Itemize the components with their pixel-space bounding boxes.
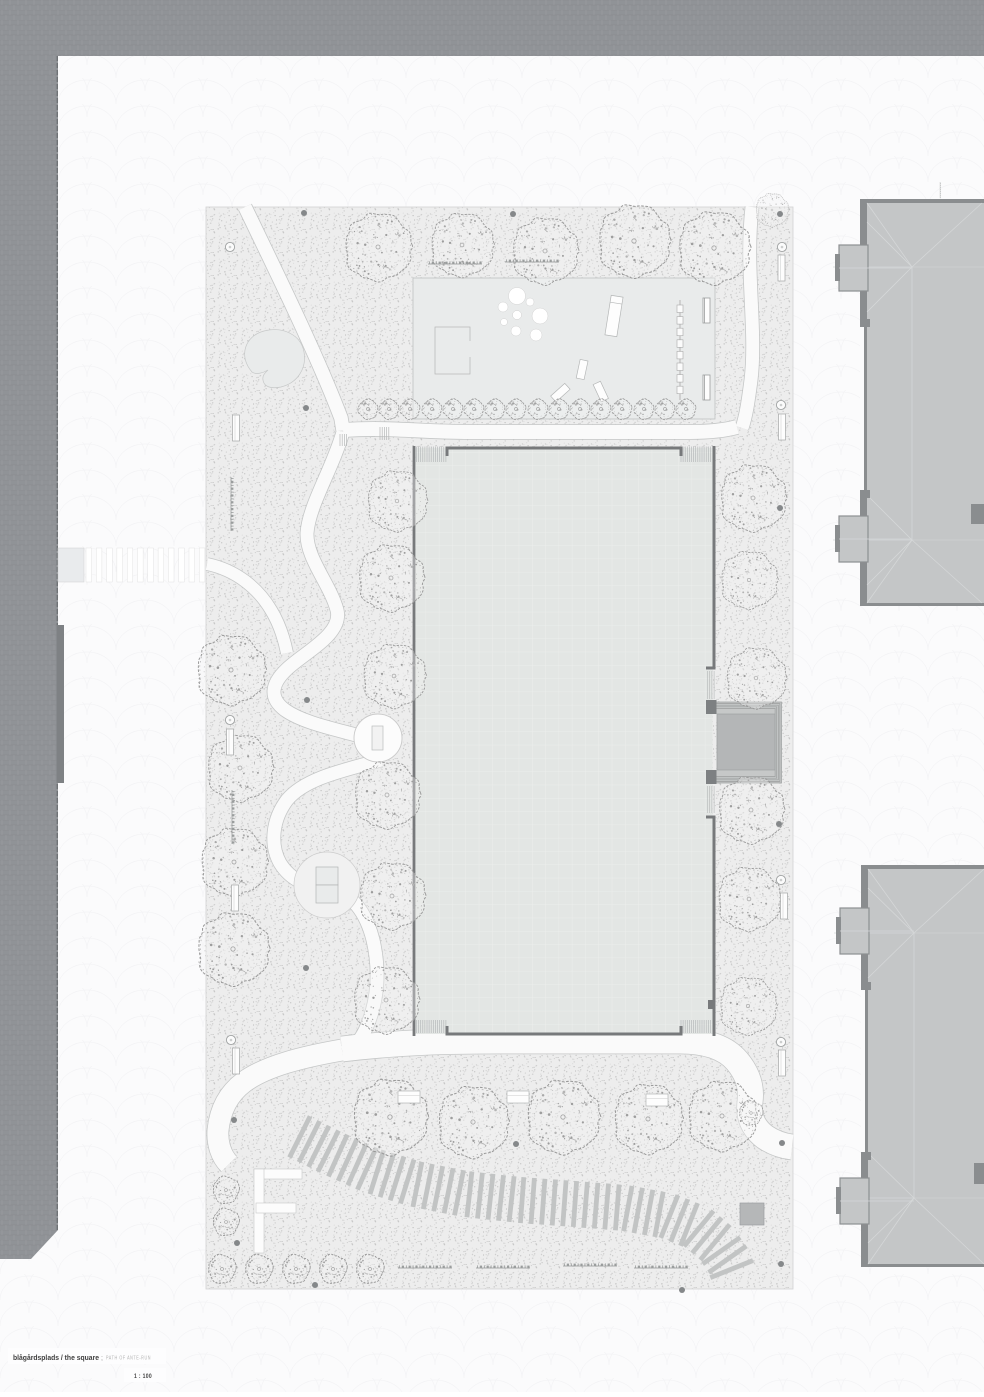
svg-text:PATH OF ANTE-RUN: PATH OF ANTE-RUN xyxy=(106,1356,151,1362)
svg-text:;: ; xyxy=(101,1355,103,1362)
svg-text:1 : 100: 1 : 100 xyxy=(134,1373,152,1380)
svg-text:blågårdsplads / the square: blågårdsplads / the square xyxy=(13,1353,99,1362)
